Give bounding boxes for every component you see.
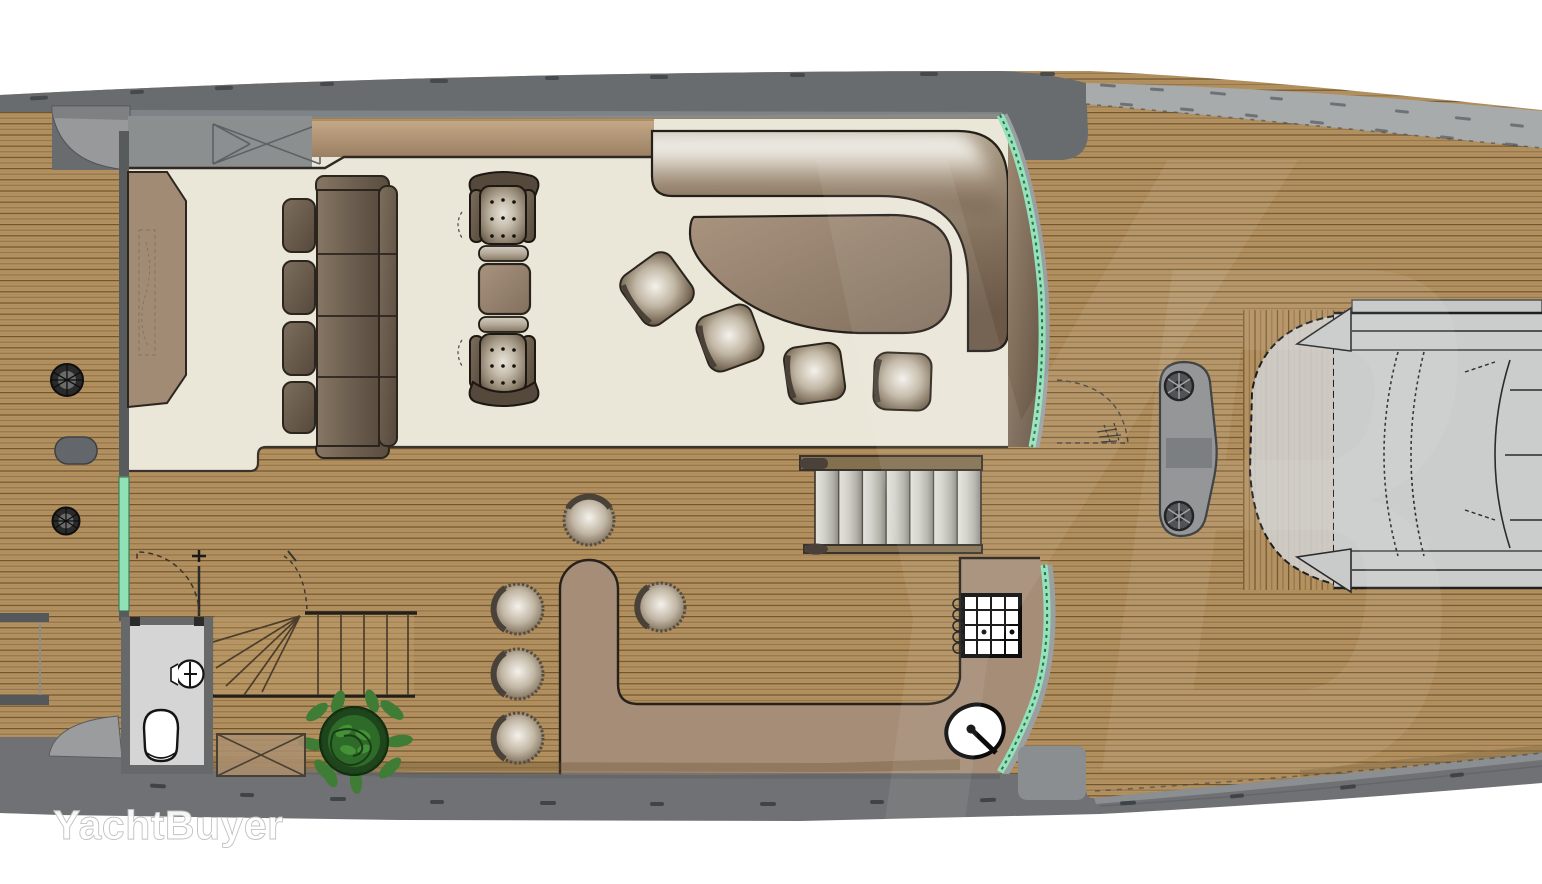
- svg-text:YachtBuyer: YachtBuyer: [53, 802, 284, 848]
